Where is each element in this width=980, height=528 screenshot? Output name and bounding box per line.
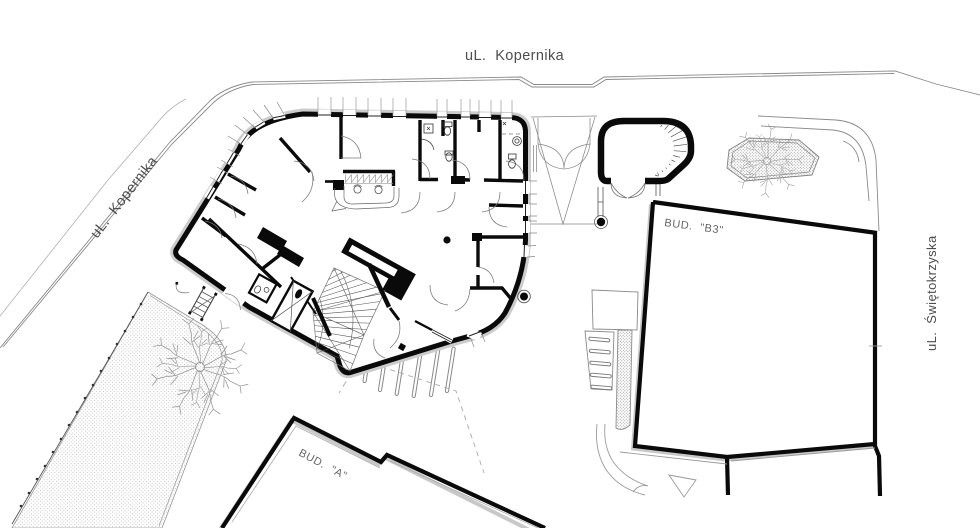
svg-text:uL. Kopernika: uL. Kopernika [465,48,565,64]
svg-text:uL. Świętokrzyska: uL. Świętokrzyska [924,235,939,351]
